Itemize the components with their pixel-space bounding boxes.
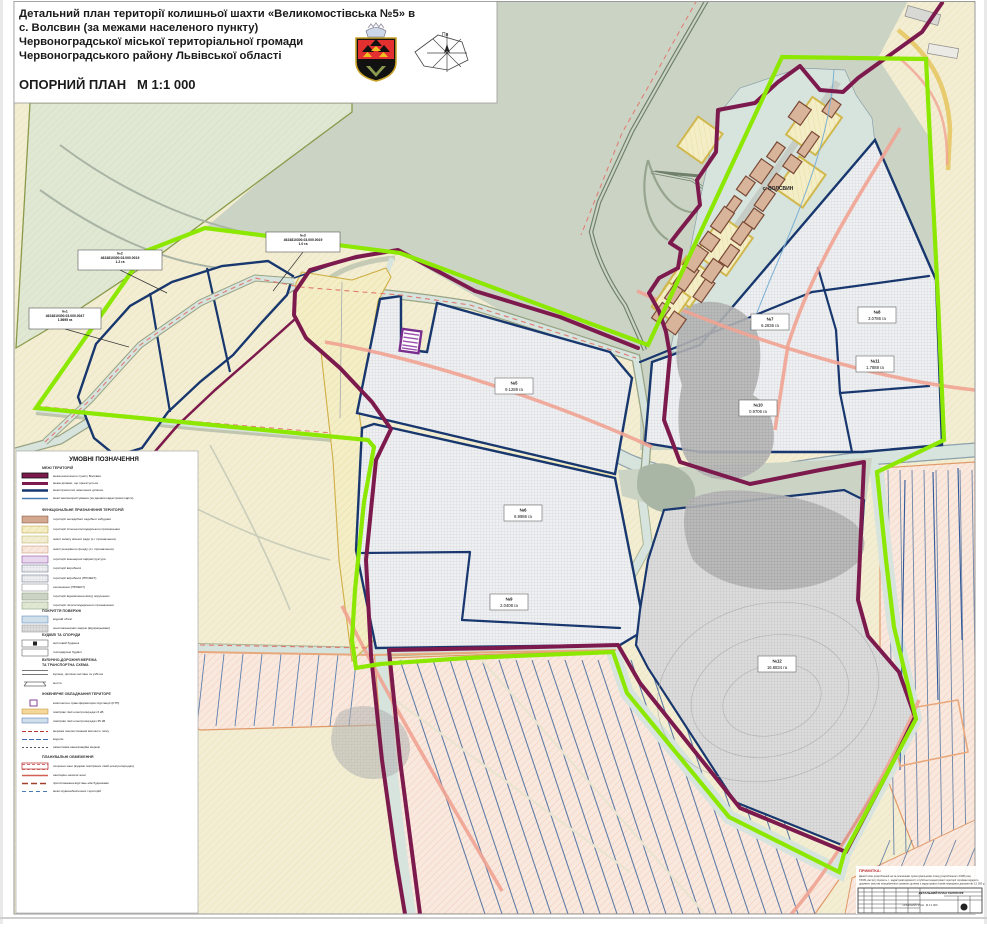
svg-text:9.1289 га: 9.1289 га — [505, 387, 523, 392]
svg-text:межі землекористування (за дан: межі землекористування (за даними кадаст… — [53, 496, 133, 500]
svg-text:№10: №10 — [753, 403, 763, 408]
svg-text:протипожежна відстань між буди: протипожежна відстань між будинками — [53, 781, 109, 785]
svg-text:межі зсувонебезпечних територі: межі зсувонебезпечних територій — [53, 789, 101, 793]
svg-text:водогін: водогін — [53, 737, 64, 741]
svg-text:ВУЛИЧНО-ДОРОЖНЯ МЕРЕЖА: ВУЛИЧНО-ДОРОЖНЯ МЕРЕЖА — [42, 658, 97, 662]
svg-text:господарські будівлі: господарські будівлі — [53, 650, 82, 654]
svg-text:№6: №6 — [520, 508, 528, 513]
svg-text:території сільськогосподарсько: території сільськогосподарського признач… — [53, 527, 120, 531]
svg-text:ДЕТАЛЬНИЙ ПЛАН ТЕРИТОРІЇ: ДЕТАЛЬНИЙ ПЛАН ТЕРИТОРІЇ — [919, 891, 964, 895]
svg-text:документ змістом передбачених: документ змістом передбачених суміжних д… — [859, 882, 985, 886]
svg-text:житловий будинок: житловий будинок — [53, 641, 80, 645]
svg-text:межа ділянки, що проектується: межа ділянки, що проектується — [53, 481, 98, 485]
svg-text:1.0 га: 1.0 га — [299, 242, 308, 246]
svg-text:території інженерної інфрастру: території інженерної інфраструктури — [53, 557, 106, 561]
svg-text:мости: мости — [53, 681, 62, 685]
svg-text:вулиця, проїзна частина та узб: вулиця, проїзна частина та узбіччя — [53, 672, 103, 676]
svg-text:6.2836 га: 6.2836 га — [761, 323, 779, 328]
svg-text:ТА ТРАНСПОРТНА СХЕМА: ТА ТРАНСПОРТНА СХЕМА — [42, 663, 89, 667]
svg-text:території виробничі: території виробничі — [53, 566, 81, 570]
svg-text:с. ВОЛСВИН: с. ВОЛСВИН — [763, 186, 794, 192]
svg-text:межі прилеглих земельних ділян: межі прилеглих земельних ділянок — [53, 488, 104, 492]
svg-text:6.9986 га: 6.9986 га — [514, 514, 532, 519]
svg-text:території виробничі (ПРОЕКТ): території виробничі (ПРОЕКТ) — [53, 576, 96, 580]
svg-text:1.5695 га: 1.5695 га — [58, 318, 73, 322]
svg-text:землі резервного фонду (с-г пр: землі резервного фонду (с-г призначення) — [53, 547, 114, 551]
svg-text:самопливні каналізаційні мереж: самопливні каналізаційні мережі — [53, 745, 100, 749]
svg-text:території лісогосподарського п: території лісогосподарського призначення — [53, 603, 114, 607]
svg-text:№12: №12 — [772, 659, 782, 664]
svg-text:зони інженерних мереж (відпрац: зони інженерних мереж (відпрацьовані) — [53, 626, 110, 630]
svg-text:1.2 га: 1.2 га — [116, 260, 125, 264]
svg-text:2.0408 га: 2.0408 га — [500, 603, 518, 608]
svg-text:0.9706 га: 0.9706 га — [749, 409, 767, 414]
svg-text:межа населеного пункту Волсвин: межа населеного пункту Волсвин — [53, 474, 101, 478]
svg-text:Детальний план території колиш: Детальний план території колишньої шахти… — [19, 8, 415, 20]
svg-text:ІНЖЕНЕРНЕ ОБЛАДНАННЯ ТЕРИТОРІЇ: ІНЖЕНЕРНЕ ОБЛАДНАННЯ ТЕРИТОРІЇ — [42, 692, 112, 696]
svg-text:Червоноградської міської терит: Червоноградської міської територіальної … — [19, 36, 303, 48]
svg-text:землі запасу міської ради (с-г: землі запасу міської ради (с-г призначен… — [53, 537, 116, 541]
svg-text:№8: №8 — [874, 310, 882, 315]
svg-text:Даний план розроблений на за о: Даний план розроблений на за основними п… — [859, 874, 972, 878]
svg-text:ФУНКЦІОНАЛЬНЕ ПРИЗНАЧЕННЯ ТЕРИ: ФУНКЦІОНАЛЬНЕ ПРИЗНАЧЕННЯ ТЕРИТОРІЙ — [42, 508, 124, 512]
svg-text:УМОВНІ ПОЗНАЧЕННЯ: УМОВНІ ПОЗНАЧЕННЯ — [69, 456, 139, 463]
svg-text:охоронні зони (вздовж повітрян: охоронні зони (вздовж повітряних ліній е… — [53, 764, 134, 768]
svg-text:ОПОРНИЙ ПЛАН М 1:1 000: ОПОРНИЙ ПЛАН М 1:1 000 — [19, 77, 196, 92]
svg-text:Червоноградського району Львів: Червоноградського району Львівської обла… — [19, 50, 282, 62]
svg-text:№7: №7 — [767, 317, 775, 322]
svg-text:МЕЖІ ТЕРИТОРІЙ: МЕЖІ ТЕРИТОРІЙ — [42, 466, 74, 470]
svg-text:комплектно-трансформаторні під: комплектно-трансформаторні підстанції (К… — [53, 701, 119, 705]
svg-text:№9: №9 — [506, 597, 514, 602]
svg-text:№11: №11 — [870, 359, 880, 364]
svg-text:Пн: Пн — [442, 32, 449, 38]
svg-text:ПРИМІТКА:: ПРИМІТКА: — [859, 868, 881, 873]
svg-text:ОПОРНИЙ ПЛАН М 1:1 000: ОПОРНИЙ ПЛАН М 1:1 000 — [903, 903, 938, 907]
svg-text:території несадибної садибної: території несадибної садибної забудови — [53, 517, 111, 521]
svg-text:повітряні лінії електропередач: повітряні лінії електропередач 6 кВ — [53, 710, 103, 714]
svg-text:с. Волсвин (за межами населено: с. Волсвин (за межами населеного пункту) — [19, 22, 258, 34]
svg-text:БУДІВЛІ ТА СПОРУДИ: БУДІВЛІ ТА СПОРУДИ — [42, 633, 81, 637]
svg-text:1.7888 га: 1.7888 га — [866, 365, 884, 370]
svg-text:ТЗОВ «Інститутпроект» і - када: ТЗОВ «Інститутпроект» і - кадастрові від… — [859, 878, 979, 882]
svg-text:повітряні лінії електропередач: повітряні лінії електропередач 35 кВ — [53, 719, 105, 723]
svg-text:мережа газопостачання високого: мережа газопостачання високого тиску — [53, 729, 110, 733]
svg-text:санітарно-захисні зони: санітарно-захисні зони — [53, 773, 86, 777]
svg-text:16.8834 га: 16.8834 га — [767, 665, 788, 670]
svg-text:3.0786 га: 3.0786 га — [868, 316, 886, 321]
svg-text:озеленення (ПРОЕКТ): озеленення (ПРОЕКТ) — [53, 585, 85, 589]
svg-text:водний об'єкт: водний об'єкт — [53, 617, 73, 621]
svg-text:ПОКРИТТЯ ПОВЕРХНІ: ПОКРИТТЯ ПОВЕРХНІ — [42, 609, 81, 613]
svg-text:№5: №5 — [511, 381, 519, 386]
svg-text:ПЛАНУВАЛЬНІ ОБМЕЖЕННЯ: ПЛАНУВАЛЬНІ ОБМЕЖЕННЯ — [42, 755, 94, 759]
svg-text:території відновлення along по: території відновлення along порушених — [53, 594, 110, 598]
